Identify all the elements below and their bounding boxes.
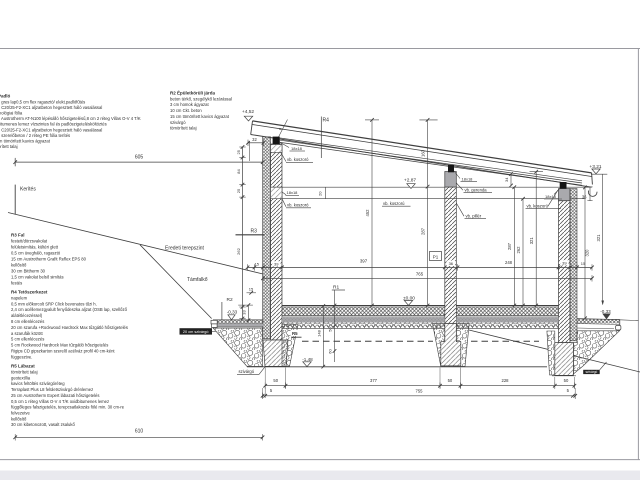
svg-text:84: 84 bbox=[236, 169, 241, 174]
svg-text:geotextília: geotextília bbox=[11, 375, 31, 380]
svg-text:20 cm szarufa +Rockwood Hardro: 20 cm szarufa +Rockwood Hardrock Max tűz… bbox=[11, 325, 128, 330]
svg-text:50: 50 bbox=[448, 378, 453, 383]
svg-text:30 cm kibetonozott, vasalt zsa: 30 cm kibetonozott, vasalt zsalukő bbox=[11, 422, 75, 427]
svg-text:5 cm ellenlécezés: 5 cm ellenlécezés bbox=[11, 337, 44, 342]
svg-text:15: 15 bbox=[249, 287, 254, 292]
svg-text:15 cm tömörített kavics ágyaza: 15 cm tömörített kavics ágyazat bbox=[0, 139, 51, 144]
svg-text:6 cm szerelőbeton / 2 réteg PE: 6 cm szerelőbeton / 2 réteg PE fólia ter… bbox=[0, 133, 70, 138]
svg-text:15 cm Austrotherm Grafit Refle: 15 cm Austrotherm Grafit Reflex EPS 80 bbox=[11, 257, 87, 262]
svg-text:+4,52: +4,52 bbox=[242, 109, 254, 115]
svg-text:Eredeti terepszint: Eredeti terepszint bbox=[165, 245, 205, 251]
svg-text:R4: R4 bbox=[323, 118, 330, 124]
svg-text:technológiai fólia: technológiai fólia bbox=[0, 111, 23, 116]
svg-text:39: 39 bbox=[274, 262, 279, 267]
svg-text:vb. gerenda: vb. gerenda bbox=[465, 187, 488, 192]
svg-text:R3: R3 bbox=[251, 229, 258, 235]
svg-text:15: 15 bbox=[581, 261, 586, 266]
svg-text:148: 148 bbox=[316, 329, 321, 336]
svg-text:vb. koszoró: vb. koszoró bbox=[287, 157, 309, 162]
svg-text:15 cm tömörített kavics ágyaza: 15 cm tömörített kavics ágyazat bbox=[170, 114, 230, 119]
svg-text:228: 228 bbox=[502, 378, 510, 383]
svg-text:321: 321 bbox=[596, 234, 601, 242]
svg-text:30 cm Bittherm 30: 30 cm Bittherm 30 bbox=[11, 269, 46, 274]
svg-text:8 cm ellenlécezés: 8 cm ellenlécezés bbox=[11, 319, 44, 324]
svg-text:-1,48: -1,48 bbox=[302, 357, 313, 362]
svg-text:10 cm Ckt. beton: 10 cm Ckt. beton bbox=[170, 108, 202, 113]
svg-text:napelem: napelem bbox=[11, 295, 28, 300]
svg-text:tömörített talaj: tömörített talaj bbox=[170, 126, 197, 131]
svg-text:-0,33: -0,33 bbox=[227, 309, 238, 314]
svg-text:kellősítő: kellősítő bbox=[11, 263, 27, 268]
svg-text:18x18: 18x18 bbox=[291, 146, 303, 151]
svg-text:20: 20 bbox=[318, 191, 323, 196]
svg-text:248: 248 bbox=[505, 260, 513, 265]
svg-text:452: 452 bbox=[365, 209, 370, 217]
svg-text:0,5 cm 1 réteg Villas O-V 4 T/: 0,5 cm 1 réteg Villas O-V 4 T/K oxidbitu… bbox=[11, 399, 109, 404]
svg-text:szivárgó: szivárgó bbox=[170, 120, 186, 125]
svg-text:vb. koszorú: vb. koszorú bbox=[383, 201, 405, 206]
svg-text:függesztve.: függesztve. bbox=[11, 354, 32, 359]
svg-text:R1: R1 bbox=[333, 284, 339, 290]
svg-text:2,4 cm acéllemezgyalult fenyőd: 2,4 cm acéllemezgyalult fenyődeszka aljz… bbox=[11, 307, 128, 312]
svg-text:R5: R5 bbox=[292, 331, 298, 336]
svg-text:320: 320 bbox=[585, 249, 590, 257]
svg-text:talpbitumenes lemez vízszintes: talpbitumenes lemez vízszintes fal és pa… bbox=[0, 122, 107, 127]
svg-text:Terraplast Plus L8 felületsziv: Terraplast Plus L8 felületszivárgó drénl… bbox=[11, 387, 93, 392]
svg-text:vb. pillér: vb. pillér bbox=[466, 213, 482, 218]
svg-text:15: 15 bbox=[254, 262, 259, 267]
svg-text:321: 321 bbox=[529, 237, 534, 245]
svg-text:0,5 mm előkorcolt SRP Click b: 0,5 mm előkorcolt SRP Click bevonatos tű… bbox=[11, 301, 97, 306]
svg-text:50: 50 bbox=[564, 378, 569, 383]
svg-text:kavics feltöltés szivárgóréteg: kavics feltöltés szivárgóréteg bbox=[11, 381, 65, 386]
svg-text:262: 262 bbox=[516, 246, 521, 254]
svg-text:36: 36 bbox=[449, 261, 454, 266]
svg-text:2 cm gres lap0,5 cm flex ragas: 2 cm gres lap0,5 cm flex ragasztó/ elekt… bbox=[0, 99, 85, 104]
svg-text:3 cm homok ágyazat: 3 cm homok ágyazat bbox=[170, 102, 209, 107]
svg-text:34: 34 bbox=[504, 177, 509, 182]
svg-text:60: 60 bbox=[327, 349, 332, 354]
svg-text:R5 Lábazat: R5 Lábazat bbox=[11, 364, 35, 369]
svg-text:R3 Fal: R3 Fal bbox=[11, 233, 25, 238]
svg-text:vb. koszoró: vb. koszoró bbox=[287, 202, 309, 207]
svg-text:R2 Épületkörüli járda: R2 Épületkörüli járda bbox=[170, 89, 216, 96]
svg-text:36: 36 bbox=[582, 195, 587, 200]
svg-text:397: 397 bbox=[360, 259, 368, 264]
svg-text:6 cm C20/25-F2-XC1 aljzatbeton: 6 cm C20/25-F2-XC1 aljzatbeton hegesztet… bbox=[0, 105, 102, 110]
svg-text:262: 262 bbox=[236, 247, 241, 254]
svg-text:Rigips CD gipszkarton szerelő: Rigips CD gipszkarton szerelő acélváz pr… bbox=[11, 349, 115, 354]
svg-text:R4 Tetőszerkezet: R4 Tetőszerkezet bbox=[11, 290, 48, 295]
svg-text:287: 287 bbox=[507, 242, 512, 250]
svg-text:függőleges falszigetelés, tere: függőleges falszigetelés, terepcsatlakoz… bbox=[11, 405, 125, 410]
svg-text:4 cm Austrotherm AT-N100 lépés: 4 cm Austrotherm AT-N100 lépésálló hőszi… bbox=[0, 116, 141, 121]
svg-text:33: 33 bbox=[242, 310, 247, 315]
svg-text:25: 25 bbox=[236, 149, 241, 154]
svg-text:765: 765 bbox=[416, 271, 424, 276]
svg-text:39: 39 bbox=[562, 261, 567, 266]
svg-text:25 cm Austrotherm Expert lábaz: 25 cm Austrotherm Expert lábazati hőszig… bbox=[11, 393, 99, 398]
svg-text:szivárgó: szivárgó bbox=[585, 370, 597, 374]
svg-text:Kerítés: Kerítés bbox=[20, 186, 36, 192]
svg-text:felvezetve: felvezetve bbox=[11, 410, 31, 415]
svg-text:a szarufák között: a szarufák között bbox=[11, 331, 43, 336]
svg-text:festés: festés bbox=[11, 281, 22, 286]
svg-text:18x18: 18x18 bbox=[462, 176, 474, 181]
svg-text:0,5 cm üvegháló, ragasztó: 0,5 cm üvegháló, ragasztó bbox=[11, 251, 61, 256]
svg-text:P1: P1 bbox=[433, 254, 439, 259]
svg-text:18x18: 18x18 bbox=[287, 190, 299, 195]
svg-text:50: 50 bbox=[327, 327, 332, 332]
svg-text:festett/dörzsvakolat: festett/dörzsvakolat bbox=[11, 239, 48, 244]
svg-text:beton térkő, szegélykő lezárás: beton térkő, szegélykő lezárással bbox=[170, 96, 232, 101]
svg-text:tömörített talaj: tömörített talaj bbox=[11, 370, 38, 375]
svg-text:8 cm C20/25-F2-XC1 aljzatbeton: 8 cm C20/25-F2-XC1 aljzatbeton hegesztet… bbox=[0, 127, 102, 132]
svg-text:szivárgó: szivárgó bbox=[239, 369, 255, 374]
svg-text:377: 377 bbox=[370, 378, 378, 383]
svg-text:tömörített talaj: tömörített talaj bbox=[0, 144, 18, 149]
svg-text:20 cm szivárgó: 20 cm szivárgó bbox=[183, 330, 209, 334]
svg-text:alátétlécezéssel): alátétlécezéssel) bbox=[11, 313, 43, 318]
svg-text:610: 610 bbox=[135, 428, 144, 434]
svg-text:felületsimítás, kültéri glett: felületsimítás, kültéri glett bbox=[11, 245, 59, 250]
svg-text:5 cm Rockwood Hardrock Max tűz: 5 cm Rockwood Hardrock Max tűzgátló hősz… bbox=[11, 343, 108, 348]
svg-text:vb. koszorú: vb. koszorú bbox=[527, 203, 549, 208]
svg-text:605: 605 bbox=[135, 154, 144, 160]
svg-text:kellősítő: kellősítő bbox=[11, 416, 27, 421]
svg-text:R2: R2 bbox=[227, 297, 233, 303]
svg-text:50: 50 bbox=[273, 378, 278, 383]
svg-text:R1 Padló: R1 Padló bbox=[0, 94, 11, 99]
svg-text:Támfalkő: Támfalkő bbox=[187, 277, 208, 283]
svg-text:160: 160 bbox=[421, 149, 426, 157]
svg-text:1,5 cm vakolat belső simítás: 1,5 cm vakolat belső simítás bbox=[11, 275, 64, 280]
svg-text:+2,87: +2,87 bbox=[404, 177, 416, 183]
svg-text:32: 32 bbox=[252, 137, 257, 142]
svg-text:755: 755 bbox=[416, 388, 424, 393]
svg-text:25: 25 bbox=[236, 188, 241, 193]
svg-text:287: 287 bbox=[421, 227, 426, 235]
